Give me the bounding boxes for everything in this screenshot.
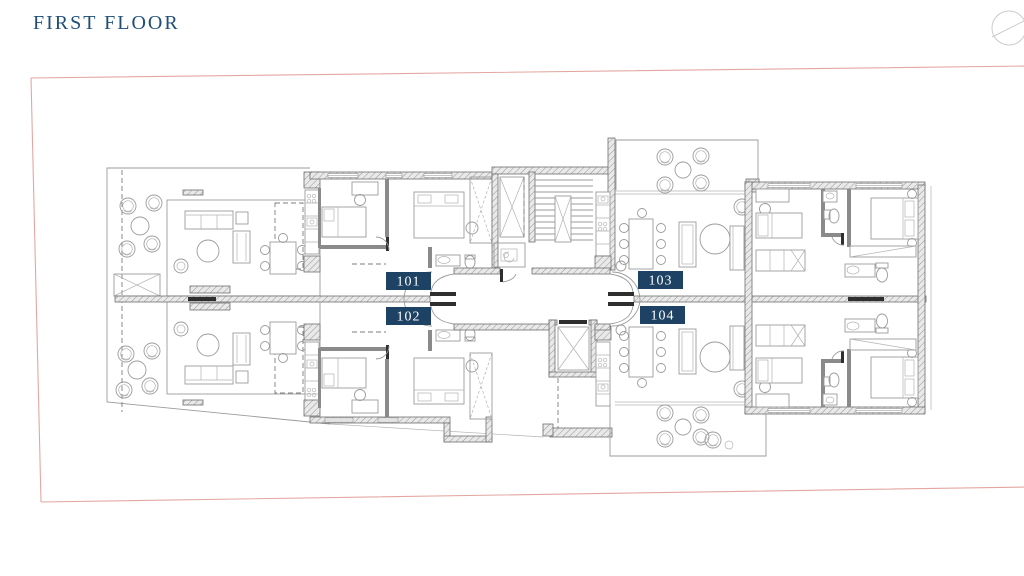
corridor <box>404 268 640 330</box>
wardrobe <box>470 177 492 243</box>
unit-103-number: 103 <box>649 274 673 289</box>
unit-102-living-room <box>167 300 320 416</box>
dining-set <box>620 209 666 270</box>
rug <box>197 334 219 356</box>
dining-set <box>261 322 307 363</box>
site-boundary <box>31 66 1024 502</box>
double-bed <box>871 190 918 248</box>
kitchen-counter-103 <box>595 192 611 270</box>
kitchen-counter-104 <box>595 326 611 406</box>
unit-badge-103: 103 <box>638 271 683 289</box>
outdoor-table <box>131 217 149 235</box>
floor-plan: 101 102 103 104 <box>0 0 1024 571</box>
unit-102-bedrooms <box>310 328 492 443</box>
unit-badge-104: 104 <box>640 306 685 324</box>
planter <box>183 190 203 195</box>
side-table <box>236 212 248 224</box>
side-table <box>236 371 248 383</box>
double-bed <box>414 358 478 404</box>
chaise <box>233 333 250 365</box>
bathroom-fixtures <box>845 263 888 282</box>
chaise <box>233 231 250 263</box>
cabinet <box>679 329 696 374</box>
tv-cabinet <box>190 286 230 293</box>
bathroom-fixtures <box>436 255 475 269</box>
plant <box>616 325 626 335</box>
tv-cabinet <box>190 303 230 310</box>
unit-102-number: 102 <box>397 310 421 325</box>
outdoor-seating-bottom <box>116 343 160 398</box>
plant <box>174 322 188 336</box>
bathroom-fixtures <box>823 191 839 223</box>
desk <box>352 400 378 413</box>
wardrobe-low <box>850 339 916 350</box>
rug <box>197 240 219 262</box>
desk <box>756 394 789 407</box>
balcony-top-right <box>615 140 759 194</box>
single-bed <box>322 207 366 237</box>
unit-104-bedrooms <box>756 325 918 407</box>
bathroom-fixtures <box>845 314 888 333</box>
wc-accessible <box>494 243 525 267</box>
cabinet <box>679 222 696 267</box>
dining-set <box>620 327 666 388</box>
outdoor-seating-top <box>119 195 162 257</box>
wardrobe-low <box>850 246 916 257</box>
planter <box>183 400 203 405</box>
closet <box>500 177 524 237</box>
rug <box>700 342 730 372</box>
wardrobe <box>756 250 805 271</box>
desk <box>756 189 789 202</box>
double-bed <box>871 349 918 407</box>
plant <box>725 441 733 449</box>
rug <box>700 224 730 254</box>
sofa <box>730 226 744 270</box>
bathroom-fixtures <box>823 373 839 405</box>
wardrobe <box>470 353 492 419</box>
outdoor-table <box>128 361 146 379</box>
unit-badge-101: 101 <box>386 272 431 290</box>
unit-104-number: 104 <box>651 309 675 324</box>
balcony-bottom-right <box>610 402 766 456</box>
desk-chair <box>355 390 366 401</box>
unit-103-bedrooms <box>756 189 918 271</box>
desk-chair <box>355 195 366 206</box>
dining-set <box>261 234 307 275</box>
unit-101-number: 101 <box>397 275 421 290</box>
wardrobe <box>756 325 805 346</box>
kitchen-counter <box>304 324 320 416</box>
outdoor-table <box>675 162 691 178</box>
staircase <box>535 180 593 242</box>
kitchen-counter <box>304 172 320 272</box>
sofa <box>730 326 744 370</box>
sofa <box>185 366 233 384</box>
single-bed <box>322 358 366 388</box>
plant <box>174 259 188 273</box>
unit-badge-102: 102 <box>386 307 431 325</box>
outdoor-table <box>675 419 691 435</box>
single-bed <box>756 358 802 383</box>
desk <box>352 182 378 195</box>
planter-box <box>114 274 160 296</box>
plant <box>616 261 626 271</box>
party-wall <box>115 292 926 306</box>
unit-101-bedrooms <box>310 172 492 269</box>
sofa <box>185 211 233 229</box>
single-bed <box>756 213 802 238</box>
double-bed <box>414 192 478 238</box>
core <box>492 138 615 437</box>
elevator <box>549 320 597 377</box>
